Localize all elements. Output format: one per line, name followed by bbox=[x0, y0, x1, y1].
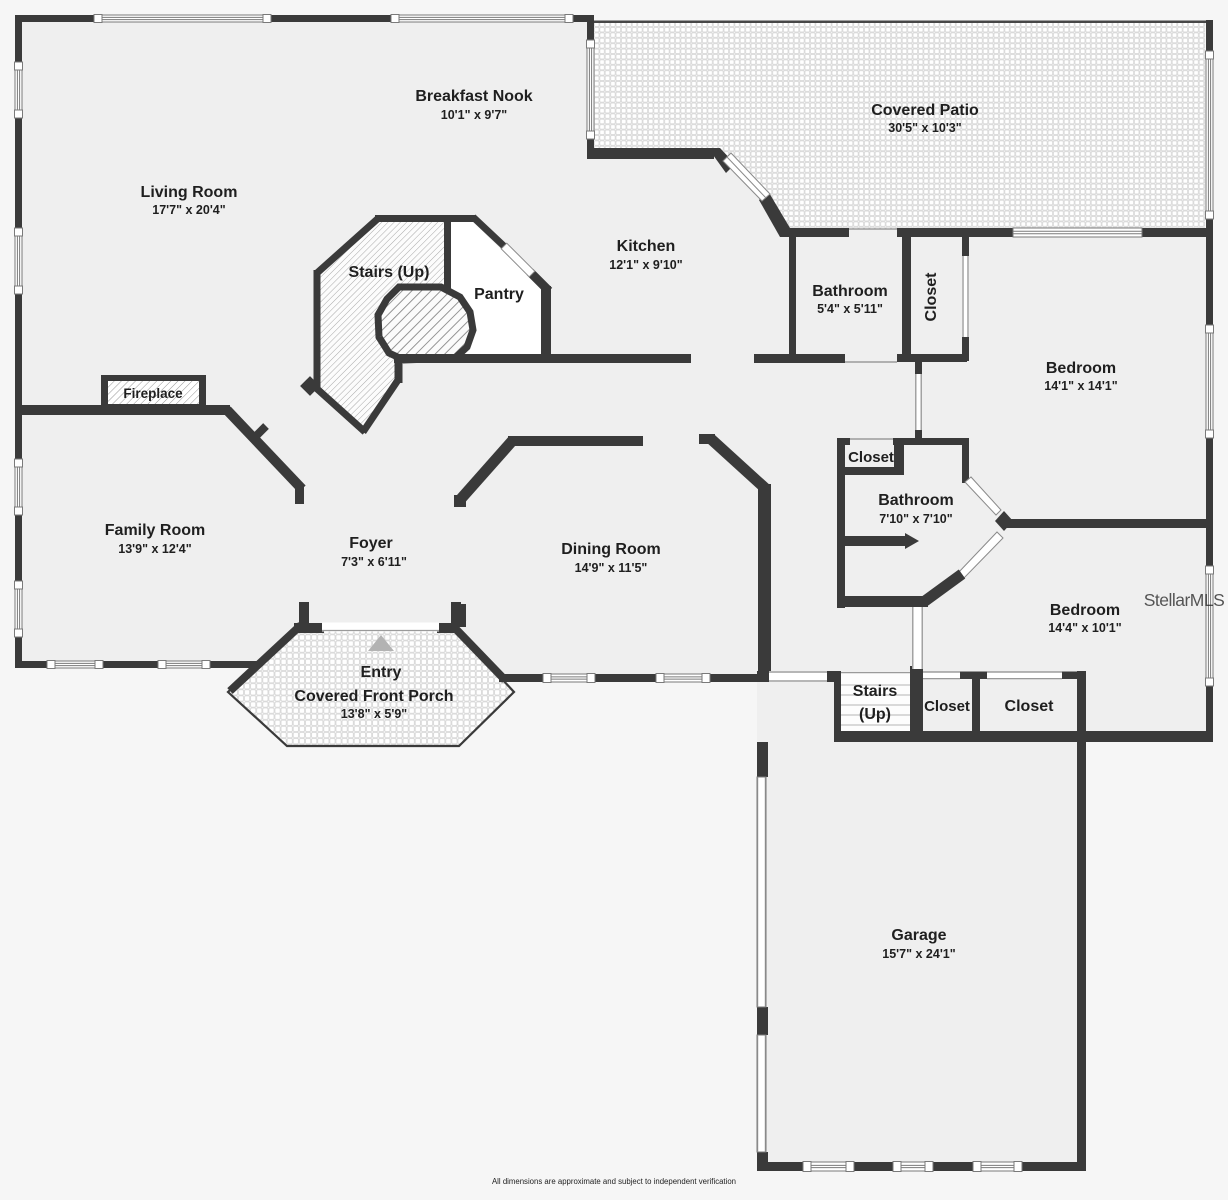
svg-text:StellarMLS: StellarMLS bbox=[1144, 590, 1225, 610]
svg-text:Dining Room: Dining Room bbox=[561, 541, 661, 558]
svg-text:Fireplace: Fireplace bbox=[123, 386, 183, 401]
svg-text:30'5" x 10'3": 30'5" x 10'3" bbox=[888, 121, 961, 135]
svg-text:Family Room: Family Room bbox=[105, 522, 205, 539]
svg-text:Garage: Garage bbox=[891, 927, 946, 944]
svg-text:Bedroom: Bedroom bbox=[1046, 360, 1116, 377]
svg-text:Bedroom: Bedroom bbox=[1050, 602, 1120, 619]
svg-text:Stairs (Up): Stairs (Up) bbox=[349, 264, 430, 281]
svg-text:Entry: Entry bbox=[361, 664, 402, 681]
svg-text:7'3" x 6'11": 7'3" x 6'11" bbox=[341, 555, 407, 569]
svg-text:Living Room: Living Room bbox=[141, 184, 238, 201]
svg-text:Kitchen: Kitchen bbox=[617, 238, 676, 255]
svg-text:13'8" x 5'9": 13'8" x 5'9" bbox=[341, 707, 408, 721]
svg-text:Covered Patio: Covered Patio bbox=[871, 102, 979, 119]
svg-text:Stairs: Stairs bbox=[853, 683, 898, 700]
svg-text:14'1" x 14'1": 14'1" x 14'1" bbox=[1044, 379, 1117, 393]
svg-text:12'1" x 9'10": 12'1" x 9'10" bbox=[609, 258, 682, 272]
svg-text:14'9" x 11'5": 14'9" x 11'5" bbox=[575, 561, 648, 575]
svg-text:13'9" x 12'4": 13'9" x 12'4" bbox=[118, 542, 191, 556]
svg-text:All dimensions are approximate: All dimensions are approximate and subje… bbox=[492, 1177, 736, 1186]
svg-text:Bathroom: Bathroom bbox=[878, 492, 954, 509]
svg-text:14'4" x 10'1": 14'4" x 10'1" bbox=[1048, 621, 1121, 635]
svg-text:5'4" x 5'11": 5'4" x 5'11" bbox=[817, 302, 883, 316]
svg-text:7'10" x 7'10": 7'10" x 7'10" bbox=[879, 512, 952, 526]
svg-text:Closet: Closet bbox=[1005, 698, 1055, 715]
svg-text:15'7" x 24'1": 15'7" x 24'1" bbox=[882, 947, 955, 961]
svg-text:Foyer: Foyer bbox=[349, 535, 393, 552]
svg-text:(Up): (Up) bbox=[859, 706, 891, 723]
svg-text:Closet: Closet bbox=[924, 698, 970, 715]
svg-text:10'1" x 9'7": 10'1" x 9'7" bbox=[441, 108, 508, 122]
svg-text:17'7" x 20'4": 17'7" x 20'4" bbox=[152, 203, 225, 217]
svg-text:Covered Front Porch: Covered Front Porch bbox=[294, 688, 453, 705]
svg-text:Pantry: Pantry bbox=[474, 286, 524, 303]
svg-text:Bathroom: Bathroom bbox=[812, 283, 888, 300]
svg-text:Breakfast Nook: Breakfast Nook bbox=[415, 88, 532, 105]
svg-text:Closet: Closet bbox=[923, 272, 940, 322]
svg-text:Closet: Closet bbox=[848, 449, 894, 466]
